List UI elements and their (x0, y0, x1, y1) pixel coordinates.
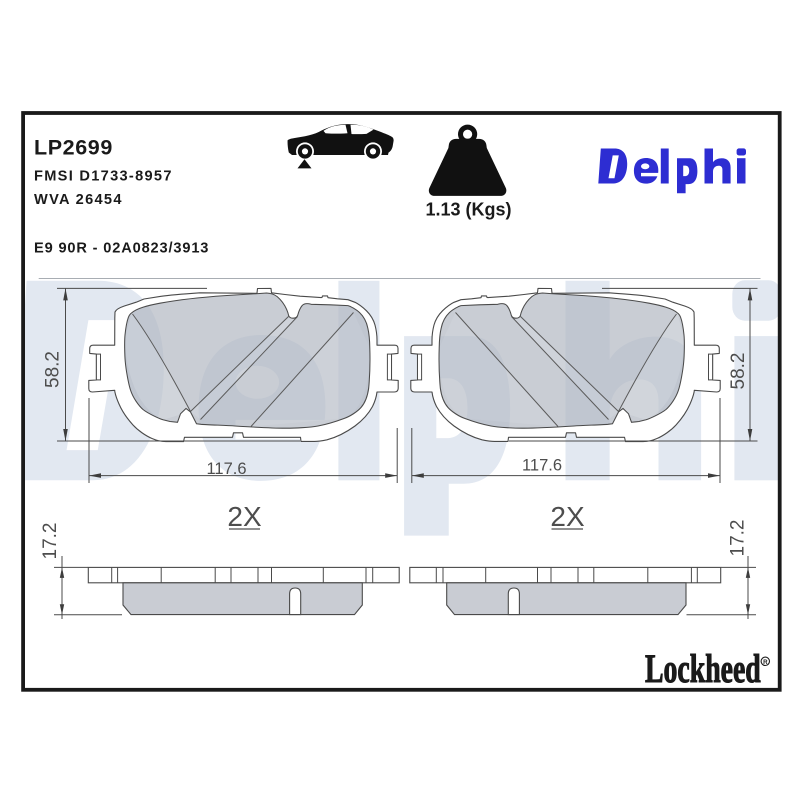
svg-text:1.13 (Kgs): 1.13 (Kgs) (425, 200, 511, 220)
svg-text:2X: 2X (550, 501, 585, 532)
svg-text:FMSI D1733-8957: FMSI D1733-8957 (34, 169, 173, 185)
svg-text:2X: 2X (227, 501, 262, 532)
svg-text:LP2699: LP2699 (34, 136, 113, 160)
svg-text:Lockheed: Lockheed (645, 647, 761, 691)
svg-text:E9 90R - 02A0823/3913: E9 90R - 02A0823/3913 (34, 241, 209, 257)
svg-text:58.2: 58.2 (728, 353, 749, 390)
svg-text:58.2: 58.2 (43, 351, 64, 388)
svg-text:117.6: 117.6 (522, 457, 562, 475)
svg-text:WVA 26454: WVA 26454 (34, 192, 123, 208)
svg-text:17.2: 17.2 (40, 523, 61, 560)
svg-text:117.6: 117.6 (206, 460, 246, 478)
svg-text:17.2: 17.2 (728, 520, 749, 557)
svg-text:R: R (763, 659, 768, 666)
